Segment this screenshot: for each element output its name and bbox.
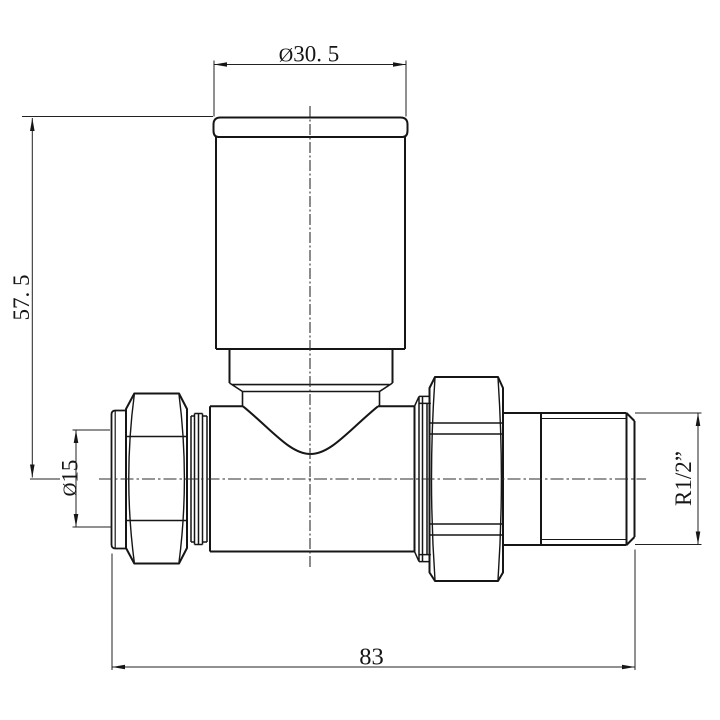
svg-text:Ø30. 5: Ø30. 5 (279, 42, 339, 67)
svg-text:Ø15: Ø15 (58, 460, 83, 497)
svg-text:R1/2”: R1/2” (671, 451, 696, 506)
svg-text:83: 83 (359, 644, 384, 671)
svg-text:57. 5: 57. 5 (9, 275, 34, 321)
